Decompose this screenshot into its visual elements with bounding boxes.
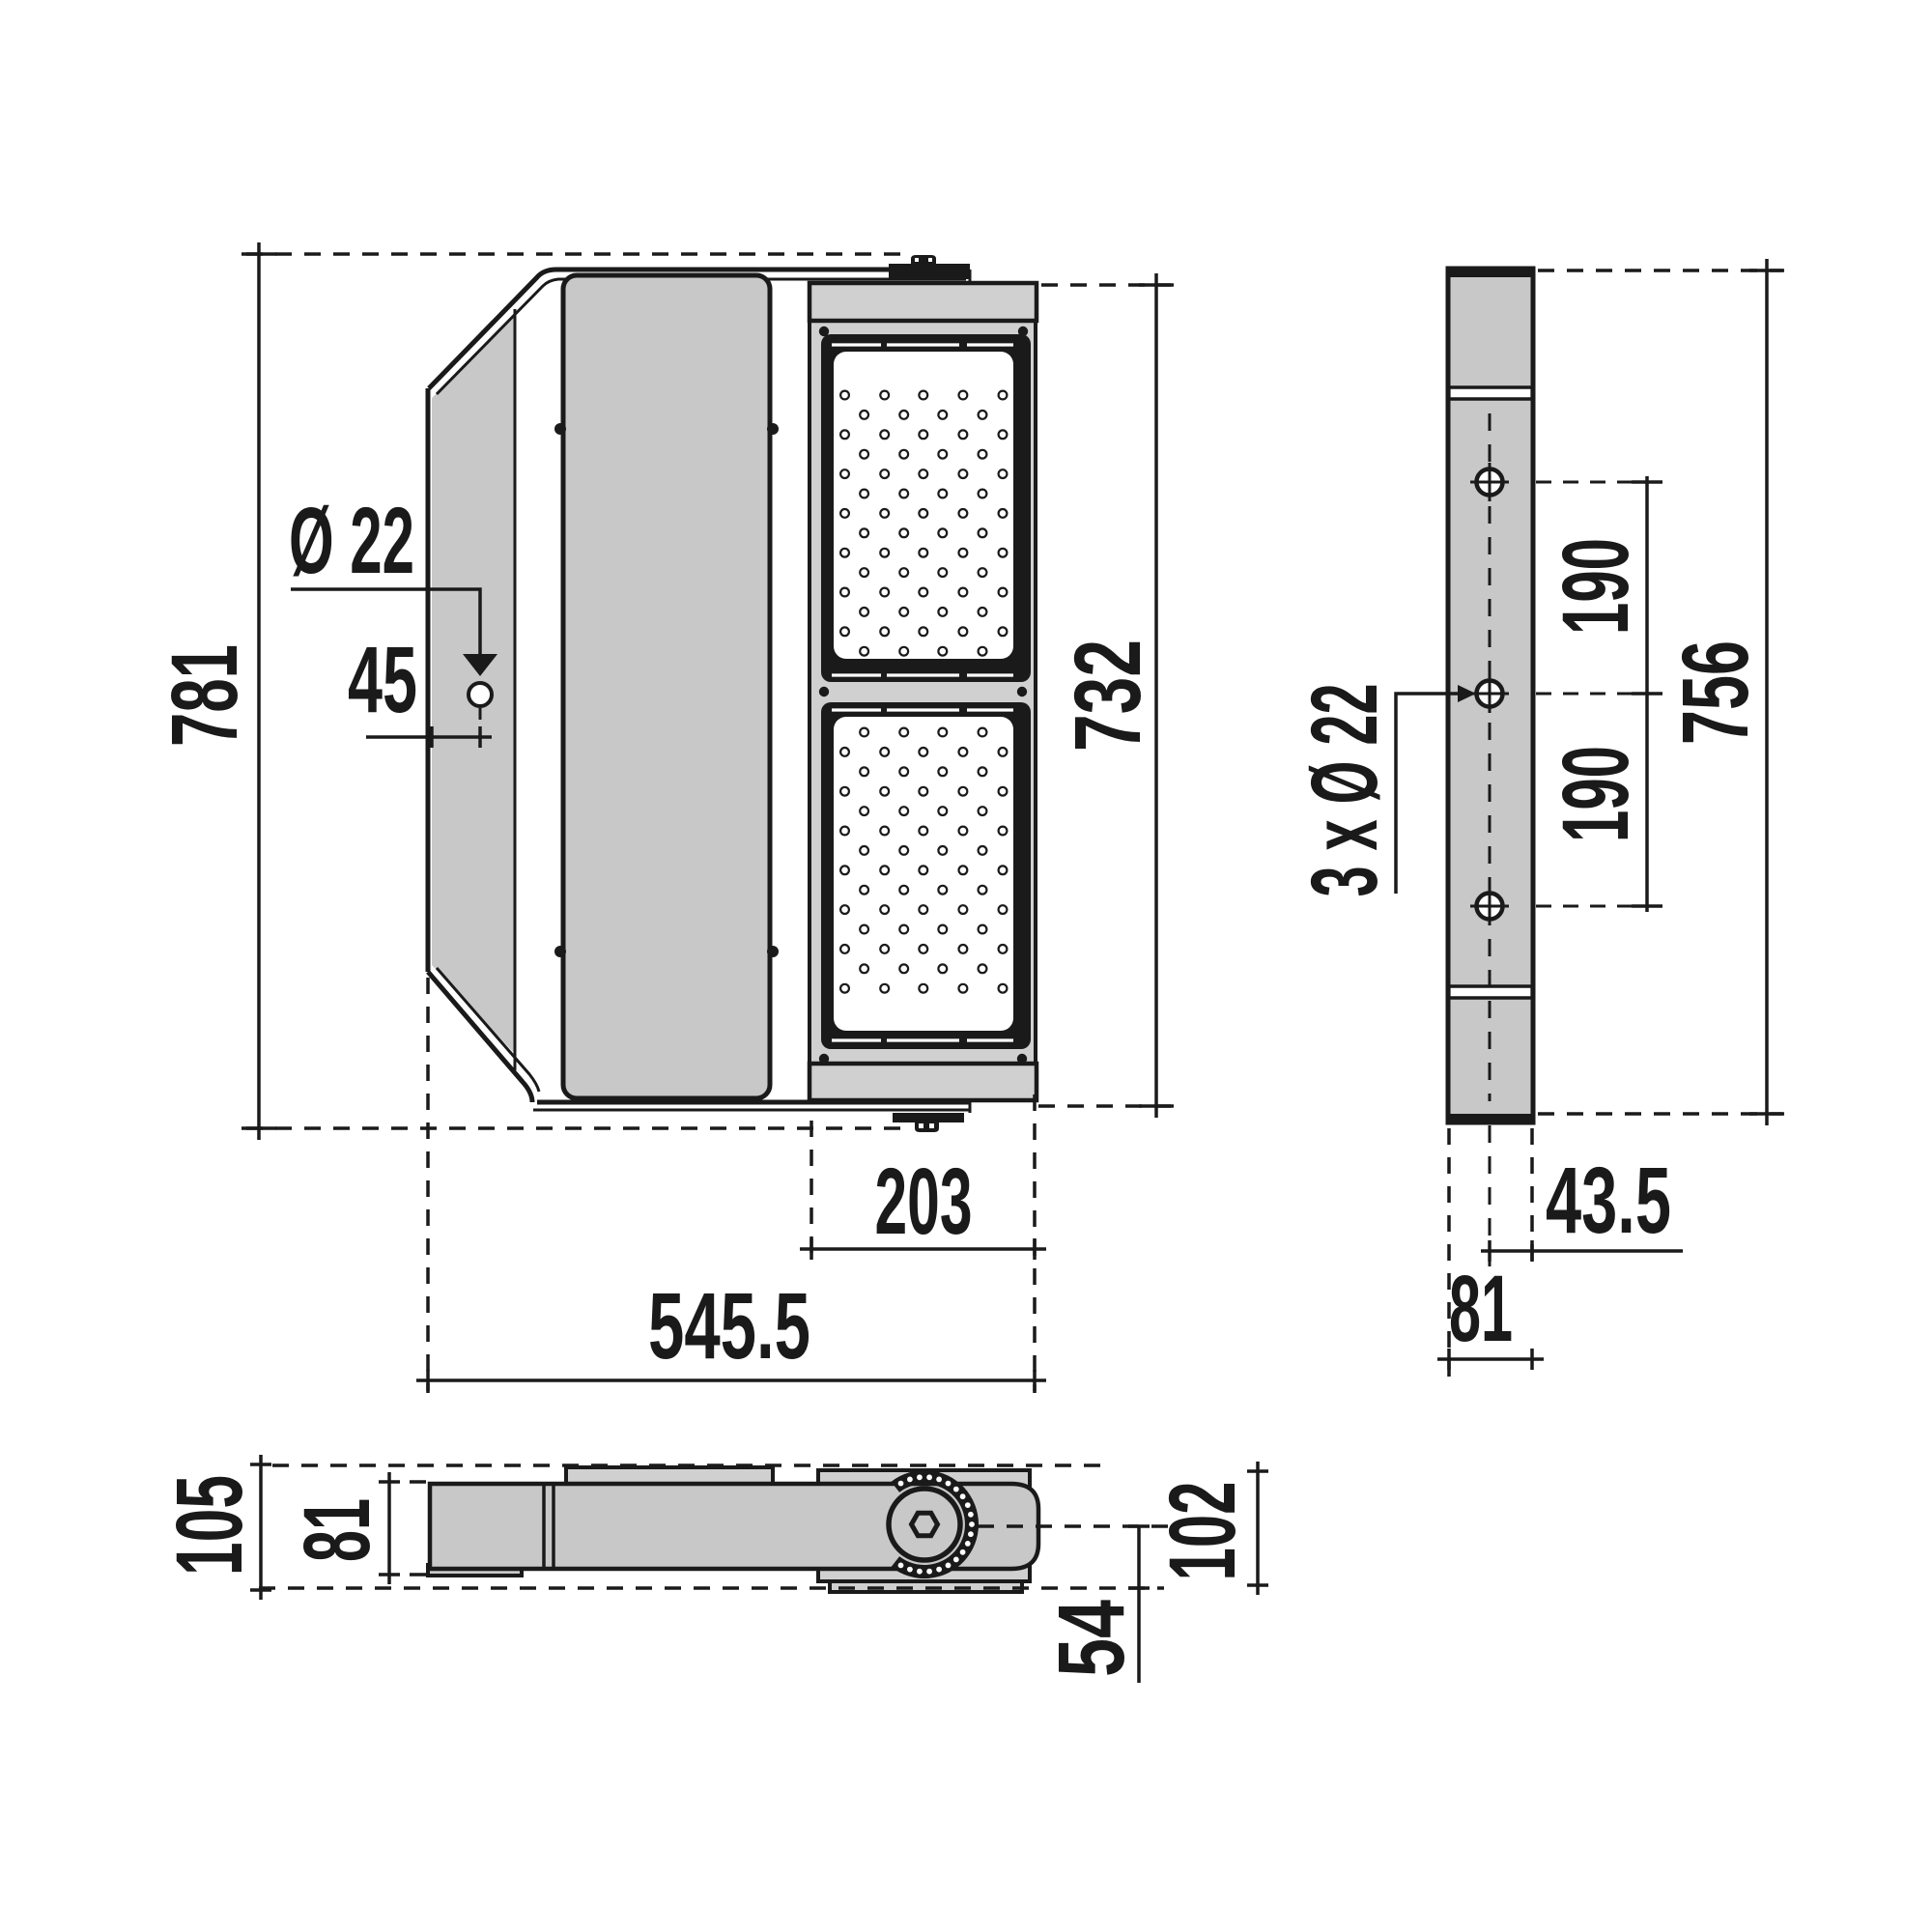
svg-text:Ø 22: Ø 22 xyxy=(289,488,414,593)
svg-text:43.5: 43.5 xyxy=(1546,1148,1671,1253)
svg-text:81: 81 xyxy=(1449,1256,1513,1361)
svg-text:45: 45 xyxy=(348,627,417,732)
svg-text:3 x Ø 22: 3 x Ø 22 xyxy=(1292,684,1397,897)
svg-text:190: 190 xyxy=(1543,746,1648,842)
svg-text:81: 81 xyxy=(284,1498,389,1562)
svg-text:54: 54 xyxy=(1038,1600,1144,1677)
svg-text:190: 190 xyxy=(1543,538,1648,635)
svg-text:545.5: 545.5 xyxy=(648,1273,810,1378)
svg-text:105: 105 xyxy=(156,1475,262,1576)
svg-text:732: 732 xyxy=(1055,639,1160,752)
svg-text:102: 102 xyxy=(1150,1482,1255,1581)
svg-text:781: 781 xyxy=(152,644,257,747)
svg-text:203: 203 xyxy=(875,1149,973,1254)
svg-text:756: 756 xyxy=(1662,640,1768,745)
